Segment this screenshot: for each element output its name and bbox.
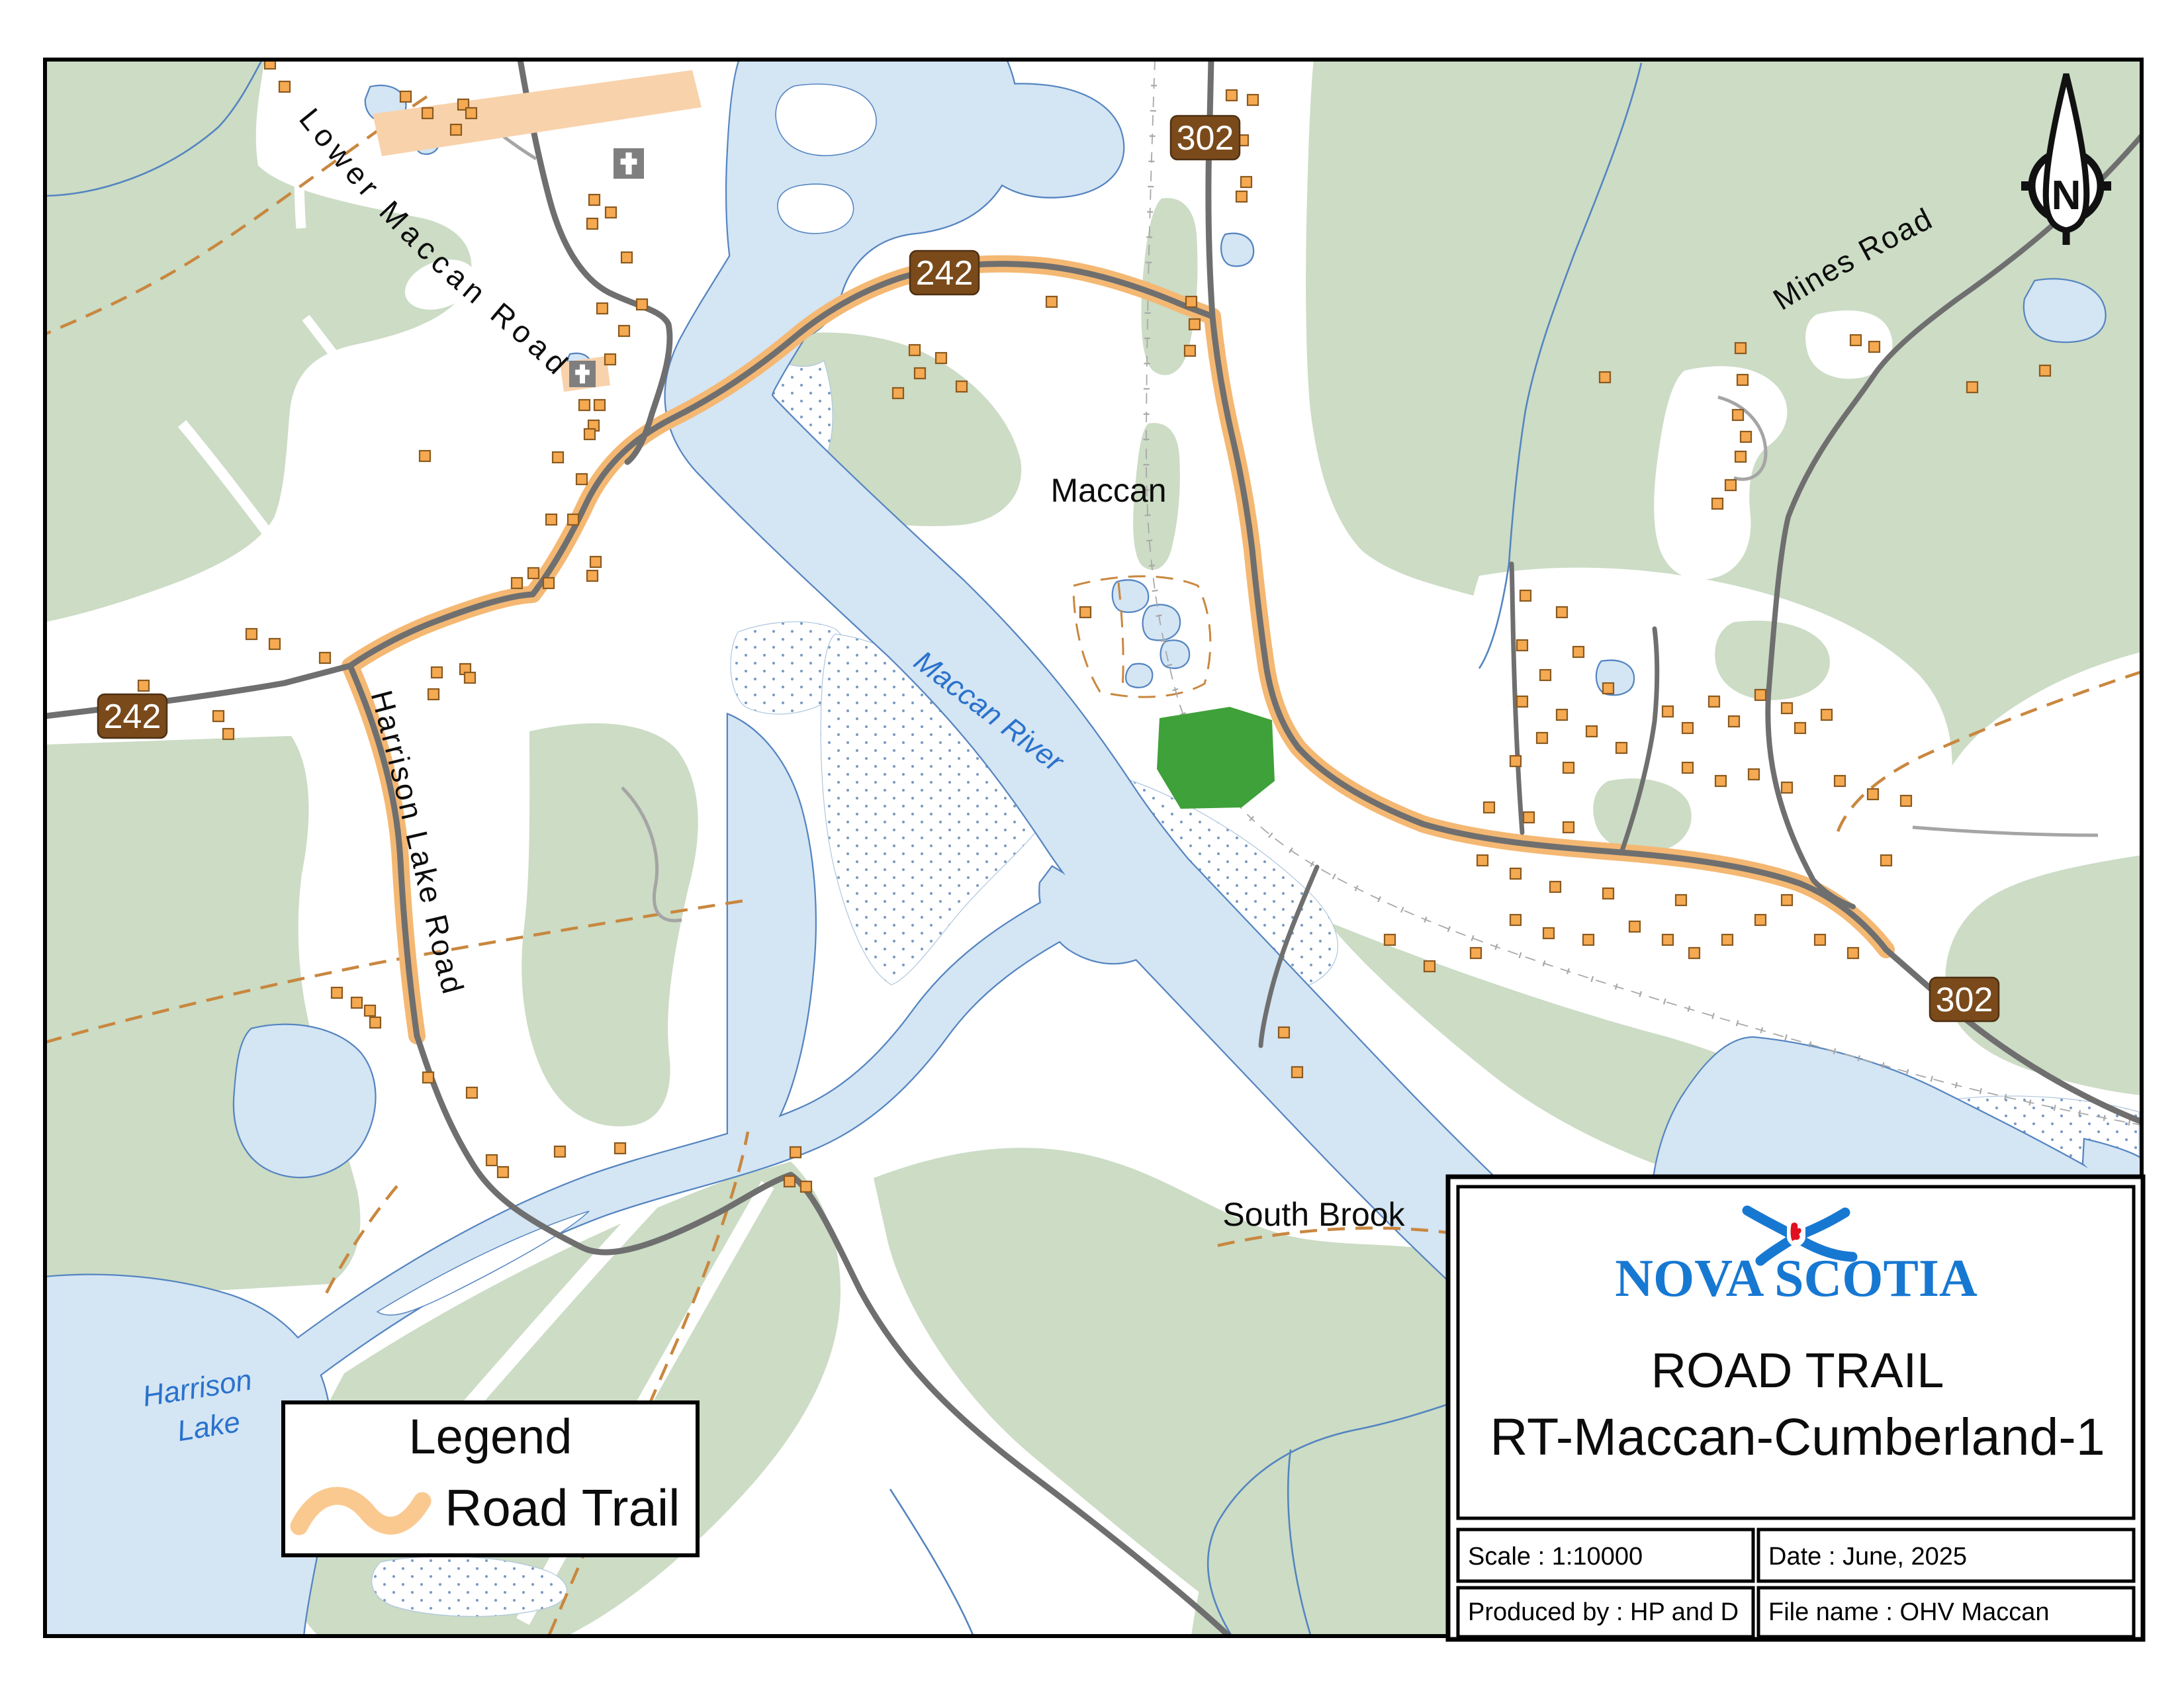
svg-text:Scale : 1:10000: Scale : 1:10000 <box>1468 1543 1643 1571</box>
svg-text:302: 302 <box>1936 981 1993 1019</box>
svg-text:Maccan: Maccan <box>1050 472 1166 509</box>
svg-text:RT-Maccan-Cumberland-1: RT-Maccan-Cumberland-1 <box>1490 1407 2105 1466</box>
svg-text:N: N <box>2052 173 2081 218</box>
svg-text:NOVA SCOTIA: NOVA SCOTIA <box>1615 1250 1978 1308</box>
svg-text:Produced by : HP and D: Produced by : HP and D <box>1468 1598 1739 1626</box>
svg-text:South Brook: South Brook <box>1222 1196 1405 1233</box>
svg-text:Road Trail: Road Trail <box>445 1479 680 1537</box>
svg-text:302: 302 <box>1177 119 1234 158</box>
svg-text:File name : OHV Maccan: File name : OHV Maccan <box>1768 1598 2049 1626</box>
svg-text:Legend: Legend <box>409 1409 572 1464</box>
svg-text:242: 242 <box>916 254 974 293</box>
svg-text:242: 242 <box>104 698 161 736</box>
svg-text:Date : June, 2025: Date : June, 2025 <box>1768 1543 1967 1571</box>
svg-text:ROAD TRAIL: ROAD TRAIL <box>1651 1343 1944 1398</box>
